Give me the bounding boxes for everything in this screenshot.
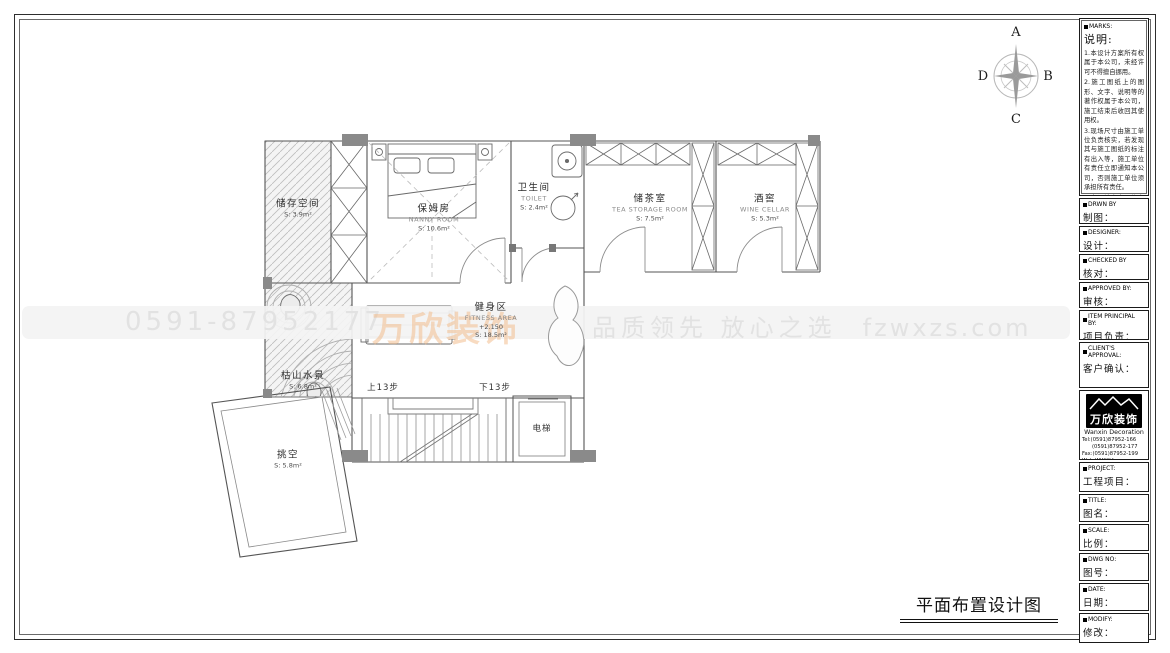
company-web: Web:WWW.fzwxzs.com (1082, 458, 1146, 460)
room-name: 挑空 (274, 450, 302, 462)
bullet-icon (1083, 231, 1087, 235)
compass-rose-icon: A B C D (976, 22, 1056, 126)
title-block-sidebar: MARKS: 说明: 1.本设计方案所有权属于本公司，未经许可不得擅自挪用。 2… (1079, 18, 1149, 643)
room-label-fitness: 健身区 FITNESS AREA +2.150 S: 18.5m² (465, 302, 517, 340)
bullet-icon (1083, 287, 1087, 291)
field-designer: DESIGNER: 设计： (1079, 226, 1149, 252)
bullet-icon (1083, 467, 1087, 471)
drawing-title-block: 平面布置设计图 (900, 591, 1058, 623)
company-contact: Tel:(0591)87952-166 (0591)87952-177 Fax:… (1082, 437, 1146, 460)
field-label-zh: 比例： (1083, 536, 1145, 550)
field-label-zh: 审核： (1083, 294, 1145, 308)
room-name: 储存空间 (276, 199, 320, 211)
room-area: S: 5.3m² (740, 214, 790, 222)
field-label-zh: 日期： (1083, 595, 1145, 609)
room-name-en: TEA STORAGE ROOM (612, 206, 688, 214)
compass-east-label: B (1043, 69, 1053, 84)
room-area: S: 2.4m² (517, 203, 550, 211)
room-label-zen: 枯山水景 S: 6.8m² (281, 371, 325, 392)
field-date: DATE: 日期： (1079, 583, 1149, 611)
field-label-zh: 制图： (1083, 210, 1145, 224)
compass-north-label: A (1010, 25, 1021, 40)
drawing-sheet: 0591-87952177 品质领先 放心之选fzwxzs.com 万欣装饰 储… (0, 0, 1170, 653)
field-label-en: CHECKED BY (1088, 257, 1126, 264)
field-header: CLIENT'S APPROVAL: (1083, 345, 1145, 359)
note-item: 4.本设计方案是依客户要求设计，经客户签字即视为同意认可，不得随意更改。 (1084, 194, 1144, 196)
room-label-toilet: 卫生间 TOILET S: 2.4m² (517, 182, 550, 211)
room-name-en: FITNESS AREA (465, 315, 517, 323)
field-label-en: PROJECT: (1088, 465, 1115, 472)
field-label-en: DWG NO: (1088, 556, 1116, 563)
field-label-zh: 图号： (1083, 565, 1145, 579)
field-label-en: DESIGNER: (1088, 229, 1121, 236)
field-label-en: CLIENT'S APPROVAL: (1088, 345, 1145, 359)
field-label-en: DATE: (1088, 586, 1106, 593)
bullet-icon (1083, 318, 1087, 322)
elevator-label: 电梯 (532, 422, 551, 434)
room-name: 保姆房 (409, 203, 459, 215)
room-area: S: 7.5m² (612, 214, 688, 222)
field-header: CHECKED BY (1083, 257, 1145, 264)
room-area: S: 3.9m² (276, 211, 320, 219)
field-label-zh: 修改： (1083, 625, 1145, 639)
bullet-icon (1083, 259, 1087, 263)
title-underline (900, 619, 1058, 620)
company-tel1: Tel:(0591)87952-166 (1082, 437, 1146, 444)
room-name: 卫生间 (517, 182, 550, 194)
room-name-en: TOILET (517, 195, 550, 203)
field-client-approval: CLIENT'S APPROVAL: 客户确认： (1079, 342, 1149, 388)
field-label-zh: 客户确认： (1083, 361, 1145, 375)
field-label-en: SCALE: (1088, 527, 1109, 534)
field-label-zh: 核对： (1083, 266, 1145, 280)
room-label-nanny: 保姆房 NANNY ROOM S: 10.6m² (409, 203, 459, 232)
field-header: ITEM PRINCIPAL BY: (1083, 313, 1145, 327)
door-arcs (460, 227, 782, 283)
field-checked-by: CHECKED BY 核对： (1079, 254, 1149, 280)
field-label-en: ITEM PRINCIPAL BY: (1088, 313, 1145, 327)
room-area: S: 6.8m² (281, 383, 325, 391)
field-label-zh: 图名： (1083, 506, 1145, 520)
bullet-icon (1084, 25, 1088, 29)
bullet-icon (1083, 588, 1087, 592)
field-item-principal: ITEM PRINCIPAL BY: 项目负责： (1079, 310, 1149, 340)
marks-header: MARKS: (1084, 23, 1144, 30)
marks-label: MARKS: (1089, 23, 1112, 30)
compass-west-label: D (978, 69, 988, 84)
field-header: APPROVED BY: (1083, 285, 1145, 292)
toilet-fixtures-icon (551, 145, 582, 220)
field-header: DRWN BY (1083, 201, 1145, 208)
field-header: DESIGNER: (1083, 229, 1145, 236)
bullet-icon (1083, 350, 1087, 354)
field-scale: SCALE: 比例： (1079, 524, 1149, 551)
drawing-title: 平面布置设计图 (900, 591, 1058, 616)
mountain-logo-icon (1086, 394, 1142, 412)
room-label-wine: 酒窖 WINE CELLAR S: 5.3m² (740, 193, 790, 222)
compass-south-label: C (1011, 112, 1021, 126)
room-name: 酒窖 (740, 193, 790, 205)
field-label-zh: 工程项目： (1083, 474, 1145, 488)
field-project: PROJECT: 工程项目： (1079, 462, 1149, 492)
company-logo: 万欣装饰 (1086, 394, 1142, 428)
watermark-phone: 0591-87952177 (125, 307, 385, 337)
room-name: 健身区 (465, 302, 517, 314)
field-label-zh: 项目负责： (1083, 329, 1145, 340)
room-area: S: 5.8m² (274, 462, 302, 470)
company-box: 万欣装饰 Wanxin Decoration Tel:(0591)87952-1… (1079, 390, 1149, 460)
room-name: 储茶室 (612, 193, 688, 205)
notes-title: 说明: (1084, 31, 1144, 47)
company-logo-zh: 万欣装饰 (1086, 411, 1142, 427)
bullet-icon (1083, 203, 1087, 207)
note-item: 3.现场尺寸由施工单位负责核实，若发现其与施工图纸的标注有出入等，施工单位有责任… (1084, 127, 1144, 193)
room-label-storage: 储存空间 S: 3.9m² (276, 199, 320, 220)
stair-down-label: 下13步 (479, 381, 511, 393)
room-area: S: 18.5m² (465, 331, 517, 339)
company-logo-en: Wanxin Decoration (1082, 429, 1146, 436)
closet-cabinets-icon (331, 141, 367, 283)
note-item: 1.本设计方案所有权属于本公司，未经许可不得擅自挪用。 (1084, 49, 1144, 77)
watermark-slogan-group: 品质领先 放心之选fzwxzs.com (592, 308, 1032, 343)
notes-box: MARKS: 说明: 1.本设计方案所有权属于本公司，未经许可不得擅自挪用。 2… (1079, 18, 1149, 196)
void-outline (212, 387, 357, 557)
field-approved-by: APPROVED BY: 审核： (1079, 282, 1149, 308)
room-area: S: 10.6m² (409, 224, 459, 232)
field-label-zh: 设计： (1083, 238, 1145, 252)
field-header: DATE: (1083, 586, 1145, 593)
title-underline-thin (900, 622, 1058, 623)
room-name-en: NANNY ROOM (409, 216, 459, 224)
watermark-slogan: 品质领先 放心之选 (592, 314, 837, 342)
field-drawn-by: DRWN BY 制图： (1079, 198, 1149, 224)
room-name: 枯山水景 (281, 371, 325, 383)
field-header: SCALE: (1083, 527, 1145, 534)
room-name-en: WINE CELLAR (740, 206, 790, 214)
company-tel2: (0591)87952-177 (1082, 444, 1146, 451)
field-label-en: APPROVED BY: (1088, 285, 1131, 292)
room-level: +2.150 (465, 323, 517, 331)
watermark-website: fzwxzs.com (863, 314, 1032, 342)
sculpture-icon (543, 282, 587, 374)
bullet-icon (1083, 499, 1087, 503)
field-title: TITLE: 图名： (1079, 494, 1149, 522)
stair-up-label: 上13步 (367, 381, 399, 393)
field-header: DWG NO: (1083, 556, 1145, 563)
notes-inner: MARKS: 说明: 1.本设计方案所有权属于本公司，未经许可不得擅自挪用。 2… (1081, 20, 1147, 194)
field-dwg-no: DWG NO: 图号： (1079, 553, 1149, 581)
field-header: PROJECT: (1083, 465, 1145, 472)
field-label-en: MODIFY: (1088, 616, 1113, 623)
stairs (362, 398, 506, 462)
company-fax: Fax:(0591)87952-199 (1082, 451, 1146, 458)
note-item: 2.施工图纸上的图形、文字、说明等的著作权属于本公司，施工结束后收回其使用权。 (1084, 78, 1144, 125)
field-header: TITLE: (1083, 497, 1145, 504)
field-modify: MODIFY: 修改： (1079, 613, 1149, 643)
room-label-tea: 储茶室 TEA STORAGE ROOM S: 7.5m² (612, 193, 688, 222)
field-label-en: TITLE: (1088, 497, 1106, 504)
bullet-icon (1083, 529, 1087, 533)
field-header: MODIFY: (1083, 616, 1145, 623)
field-label-en: DRWN BY (1088, 201, 1116, 208)
bullet-icon (1083, 618, 1087, 622)
room-label-void: 挑空 S: 5.8m² (274, 450, 302, 471)
bullet-icon (1083, 558, 1087, 562)
